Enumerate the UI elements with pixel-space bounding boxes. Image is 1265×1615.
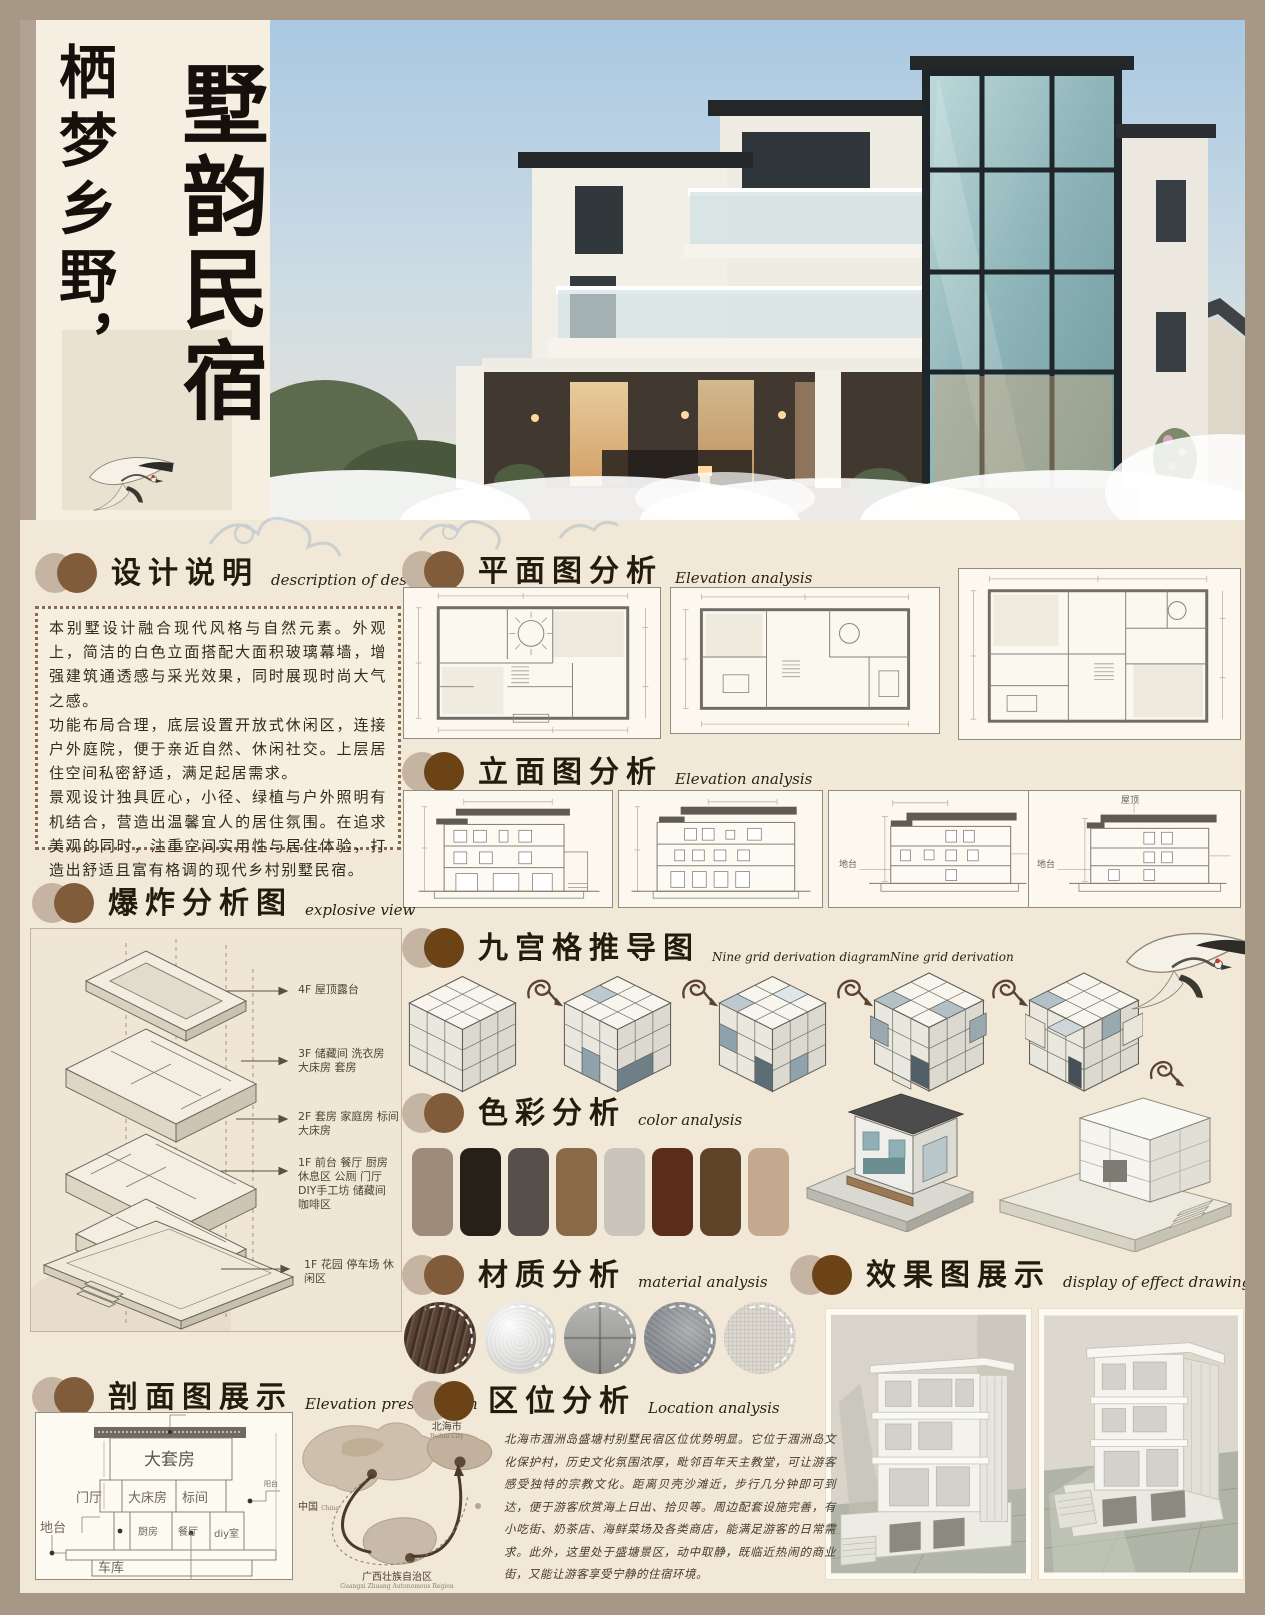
section-title-en: Nine grid derivation diagramNine grid de… <box>712 950 1014 969</box>
section-header-explosive: 爆炸分析图 explosive view <box>32 878 415 924</box>
poster-page: { "page": { "title_left": "栖梦乡野，", "titl… <box>0 0 1265 1615</box>
section-title-en: material analysis <box>638 1273 768 1296</box>
elevation-2 <box>618 790 823 908</box>
section-title: 立面图分析 <box>478 753 663 793</box>
crane-icon <box>34 448 224 518</box>
section-dot-icon <box>402 751 466 793</box>
room-label-platform: 地台 <box>40 1517 66 1536</box>
map-label-china: 中国 China <box>298 1498 339 1513</box>
room-label-balcony: 阳台 <box>264 1479 278 1489</box>
section-title: 平面图分析 <box>478 552 663 592</box>
section-header-color: 色彩分析 color analysis <box>402 1088 742 1134</box>
floor-plan-drawing <box>404 588 660 738</box>
room-label-dining: 餐厅 <box>178 1523 198 1538</box>
section-title: 区位分析 <box>488 1382 636 1422</box>
room-label-double: 大床房 <box>128 1487 167 1506</box>
location-description: 北海市涠洲岛盛塘村别墅民宿区位优势明显。它位于涠洲岛文化保护村，历史文化氛围浓厚… <box>504 1428 836 1586</box>
section-header-design: 设计说明 description of design <box>35 548 431 594</box>
floor-plan-drawing <box>959 569 1240 739</box>
explosive-label-2f: 2F 套房 家庭房 标间 大床房 <box>298 1110 400 1138</box>
cube-step-4 <box>870 968 988 1096</box>
model-photo-2 <box>1038 1308 1244 1580</box>
section-title: 效果图展示 <box>866 1256 1051 1296</box>
section-title: 色彩分析 <box>478 1094 626 1134</box>
room-label-diy: diy室 <box>214 1525 239 1540</box>
section-title: 设计说明 <box>111 554 259 594</box>
material-circle-dark-wood <box>404 1302 476 1374</box>
elevation-roof-label: 屋顶 <box>1121 793 1139 806</box>
map-label-beihai: 北海市Beihai City <box>430 1418 463 1440</box>
elevation-drawing <box>404 791 612 907</box>
design-paragraph: 景观设计独具匠心，小径、绿植与户外照明有机结合，营造出温馨宜人的居住氛围。在追求… <box>49 785 387 882</box>
section-title-en: display of effect drawing <box>1063 1273 1245 1296</box>
room-label-foyer: 门厅 <box>76 1487 102 1506</box>
section-dot-icon <box>402 1092 466 1134</box>
section-header-effect: 效果图展示 display of effect drawing <box>790 1250 1245 1296</box>
white-study-model <box>985 1088 1245 1252</box>
section-dot-icon <box>35 552 99 594</box>
material-circle-concrete <box>644 1302 716 1374</box>
color-swatch <box>412 1148 453 1236</box>
material-samples <box>404 1302 796 1374</box>
design-paragraph: 本别墅设计融合现代风格与自然元素。外观上，简洁的白色立面搭配大面积玻璃幕墙，增强… <box>49 616 387 713</box>
location-map: 中国 China 北海市Beihai City 广西壮族自治区Guangxi Z… <box>282 1410 507 1593</box>
section-title: 材质分析 <box>478 1256 626 1296</box>
title-panel: 墅韵民宿 栖梦乡野， <box>20 20 270 520</box>
floor-plan-3 <box>958 568 1241 740</box>
model-photo-drawing <box>831 1314 1026 1574</box>
section-title-en: color analysis <box>638 1111 742 1134</box>
elevation-platform-label: 地台 <box>839 857 857 870</box>
design-description-box: 本别墅设计融合现代风格与自然元素。外观上，简洁的白色立面搭配大面积玻璃幕墙，增强… <box>35 606 401 850</box>
elevation-4: 屋顶 地台 <box>1028 790 1241 908</box>
color-swatch <box>556 1148 597 1236</box>
section-header-plan: 平面图分析 Elevation analysis <box>402 546 812 592</box>
color-swatch <box>508 1148 549 1236</box>
explosive-label-3f: 3F 储藏间 洗衣房 大床房 套房 <box>298 1047 398 1075</box>
elevation-3: 地台 <box>828 790 1041 908</box>
design-paragraph: 功能布局合理，底层设置开放式休闲区，连接户外庭院，便于亲近自然、休闲社交。上层居… <box>49 713 387 786</box>
hero-villa-photo <box>270 20 1245 520</box>
main-title-vertical: 墅韵民宿 <box>174 60 260 428</box>
floor-plan-1 <box>403 587 661 739</box>
material-circle-silver-fabric <box>484 1302 556 1374</box>
section-title-en: Location analysis <box>648 1399 780 1422</box>
color-swatch <box>652 1148 693 1236</box>
map-label-guangxi: 广西壮族自治区Guangxi Zhuang Autonomous Region <box>332 1568 462 1590</box>
room-label-standard: 标间 <box>182 1487 208 1506</box>
room-label-garage: 车库 <box>98 1557 124 1576</box>
explosive-label-1f: 1F 前台 餐厅 厨房 休息区 公厕 门厅 DIY手工坊 储藏间 咖啡区 <box>298 1156 398 1212</box>
room-label-kitchen: 厨房 <box>138 1523 158 1538</box>
cube-step-1 <box>405 972 520 1096</box>
elevation-platform-label: 地台 <box>1037 857 1055 870</box>
section-dot-icon <box>790 1254 854 1296</box>
section-title: 爆炸分析图 <box>108 884 293 924</box>
room-label-suite: 大套房 <box>144 1445 195 1470</box>
model-photo-1 <box>825 1308 1032 1580</box>
section-title: 九宫格推导图 <box>478 929 700 969</box>
colored-study-model <box>795 1080 980 1232</box>
floor-plan-drawing <box>671 588 939 733</box>
model-photo-drawing <box>1044 1314 1238 1574</box>
poster-board: 墅韵民宿 栖梦乡野， 设计说明 description of design 本别… <box>20 20 1245 1593</box>
color-swatch <box>748 1148 789 1236</box>
elevation-drawing <box>829 791 1040 907</box>
section-header-elevation: 立面图分析 Elevation analysis <box>402 747 812 793</box>
material-circle-plaster <box>724 1302 796 1374</box>
explosive-label-4f: 4F 屋顶露台 <box>298 983 398 997</box>
section-view-box: 大套房 大床房 标间 门厅 厨房 餐厅 diy室 地台 车库 阳台 <box>35 1412 293 1580</box>
cube-step-3 <box>715 972 830 1096</box>
color-palette <box>412 1148 789 1236</box>
section-title-en: explosive view <box>305 901 415 924</box>
floor-plan-2 <box>670 587 940 734</box>
color-swatch <box>604 1148 645 1236</box>
color-swatch <box>460 1148 501 1236</box>
elevation-drawing <box>619 791 822 907</box>
cube-step-2 <box>560 972 675 1096</box>
section-dot-icon <box>402 550 466 592</box>
subtitle-vertical: 栖梦乡野， <box>54 42 112 382</box>
title-panel-strip <box>20 20 36 520</box>
elevation-1 <box>403 790 613 908</box>
color-swatch <box>700 1148 741 1236</box>
crane-icon <box>1108 920 1245 1020</box>
elevation-drawing <box>1029 791 1240 907</box>
villa-illustration <box>270 20 1245 520</box>
section-dot-icon <box>402 927 466 969</box>
section-dot-icon <box>402 1254 466 1296</box>
section-header-material: 材质分析 material analysis <box>402 1250 768 1296</box>
material-circle-stone-tile <box>564 1302 636 1374</box>
explosive-label-site: 1F 花园 停车场 休闲区 <box>304 1258 400 1286</box>
section-dot-icon <box>32 882 96 924</box>
section-header-ninegrid: 九宫格推导图 Nine grid derivation diagramNine … <box>402 923 1014 969</box>
